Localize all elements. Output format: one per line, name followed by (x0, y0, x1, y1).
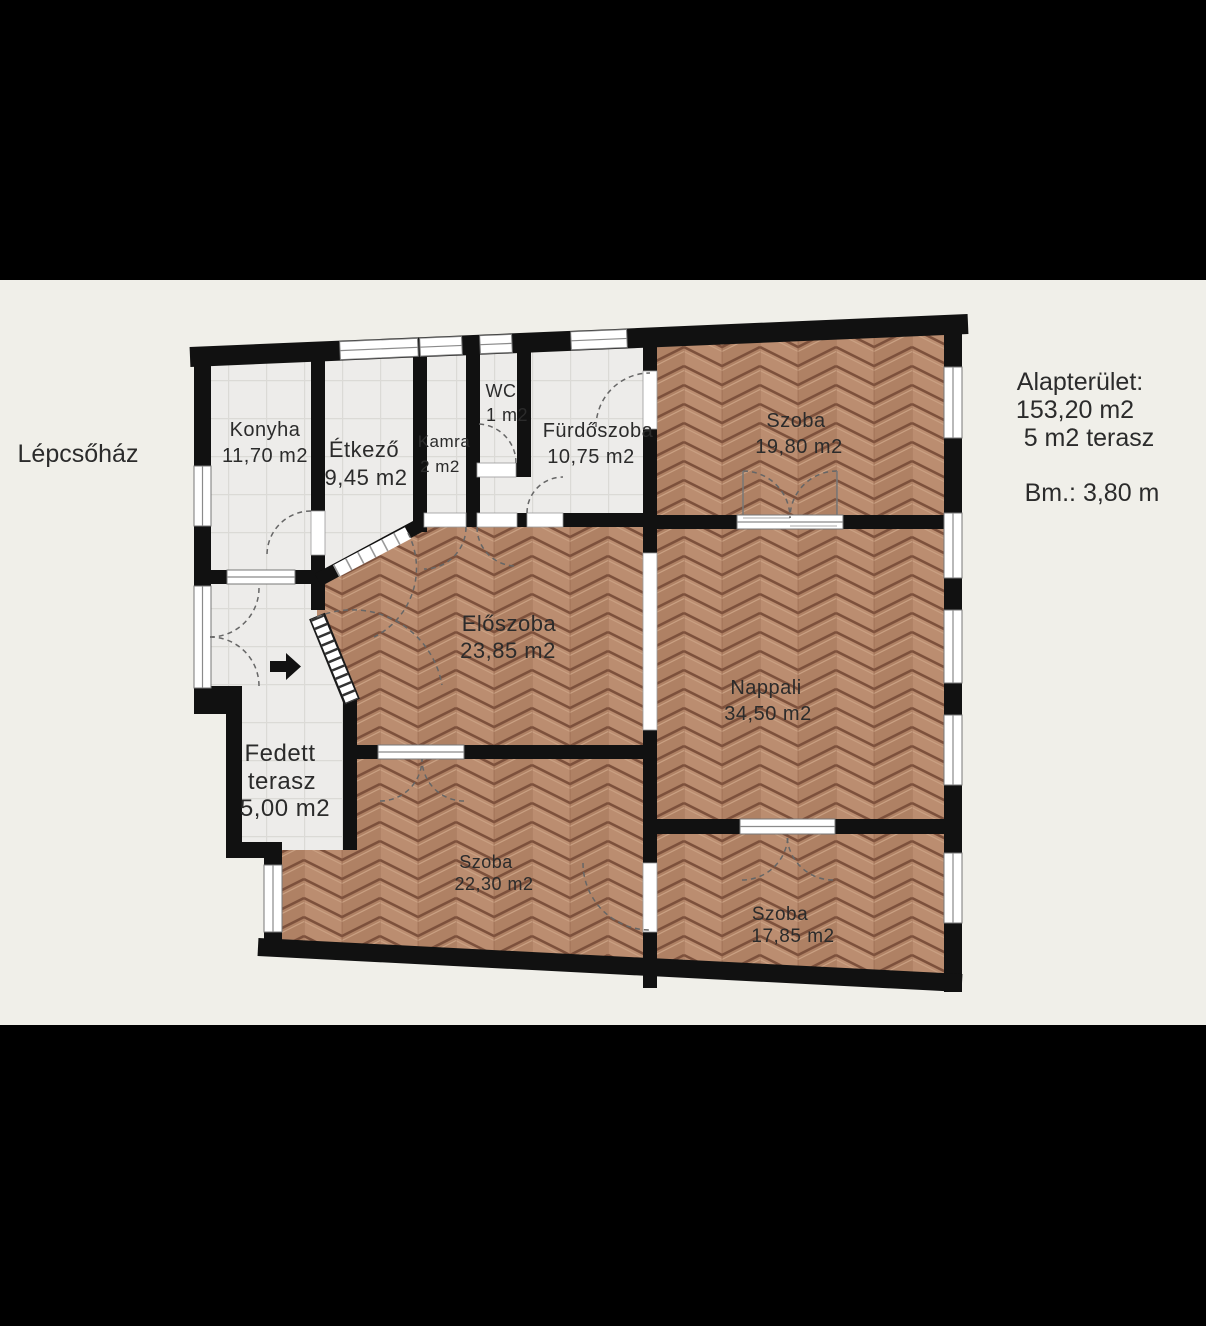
room-furdoszoba-name: Fürdőszoba (543, 420, 654, 442)
window-nappali-right-3 (944, 715, 962, 785)
window-konyha-bottom (227, 570, 295, 584)
info-ceiling-height: Bm.: 3,80 m (1025, 479, 1160, 507)
room-terasz-area: 5,00 m2 (240, 795, 330, 822)
room-szoba-also-area: 22,30 m2 (454, 874, 533, 894)
wall-terrace-right (343, 696, 357, 850)
door-gap-furdoszoba (527, 513, 563, 527)
window-szoba-also-left (264, 865, 282, 932)
room-nappali-area: 34,50 m2 (724, 703, 811, 725)
floor-plan-canvas: Lépcsőház Konyha 11,70 m2 Étkező 9,45 m2… (0, 0, 1206, 1326)
bottom-letterbox-bar (0, 1025, 1206, 1326)
room-etkezo-area: 9,45 m2 (325, 465, 408, 490)
room-szoba-felso-area: 19,80 m2 (755, 436, 842, 458)
room-szoba-felso-name: Szoba (766, 410, 826, 432)
double-door-szoba-also (378, 745, 464, 759)
window-nappali-right-1 (944, 513, 962, 578)
door-gap-szoba-szoba (643, 863, 657, 932)
room-terasz-name-2: terasz (248, 768, 316, 795)
window-vestibule-french-door (194, 586, 211, 688)
floors (194, 316, 962, 992)
door-gap-konyha (311, 511, 325, 555)
window-szoba-jobb-right (944, 853, 962, 923)
room-nappali-name: Nappali (730, 677, 801, 699)
room-konyha-area: 11,70 m2 (222, 445, 308, 467)
staircase-label: Lépcsőház (18, 440, 139, 468)
room-kamra-area: 2 m2 (420, 457, 460, 476)
window-wc-top (480, 334, 513, 353)
room-wc-name: WC (486, 381, 517, 401)
top-letterbox-bar (0, 0, 1206, 280)
window-furdoszoba-top (571, 329, 628, 349)
room-konyha-name: Konyha (230, 419, 301, 441)
wall-terrace-left (226, 700, 242, 858)
window-szoba-felso-right (944, 367, 962, 438)
opening-eloszoba-nappali (643, 553, 657, 730)
room-eloszoba-name: Előszoba (462, 611, 557, 636)
window-konyha-left (194, 466, 211, 526)
room-szoba-also-name: Szoba (459, 852, 513, 872)
room-szoba-jobb-area: 17,85 m2 (751, 926, 834, 947)
info-terrace-area: 5 m2 terasz (1024, 424, 1155, 452)
info-panel: Alapterület: 153,20 m2 5 m2 terasz Bm.: … (1016, 368, 1159, 507)
window-nappali-right-2 (944, 610, 962, 683)
floor-plan-page: Lépcsőház Konyha 11,70 m2 Étkező 9,45 m2… (0, 0, 1206, 1326)
room-wc-area: 1 m2 (486, 405, 528, 425)
room-szoba-jobb-name: Szoba (752, 904, 808, 925)
room-furdoszoba-area: 10,75 m2 (547, 446, 634, 468)
room-etkezo-name: Étkező (329, 437, 399, 462)
room-kamra-name: Kamra (418, 432, 471, 451)
info-total-area: 153,20 m2 (1016, 396, 1134, 424)
room-terasz-name-1: Fedett (244, 740, 315, 767)
opening-eloszoba-lobby (477, 513, 517, 527)
parquet-nappali (651, 522, 953, 827)
info-title: Alapterület: (1017, 368, 1143, 396)
door-gap-kamra (424, 513, 466, 527)
door-gap-wc (477, 463, 516, 477)
window-etkezo-top (340, 338, 419, 359)
room-eloszoba-area: 23,85 m2 (460, 638, 556, 663)
window-kamra-top (420, 336, 463, 356)
double-door-szoba-jobb (740, 819, 835, 834)
